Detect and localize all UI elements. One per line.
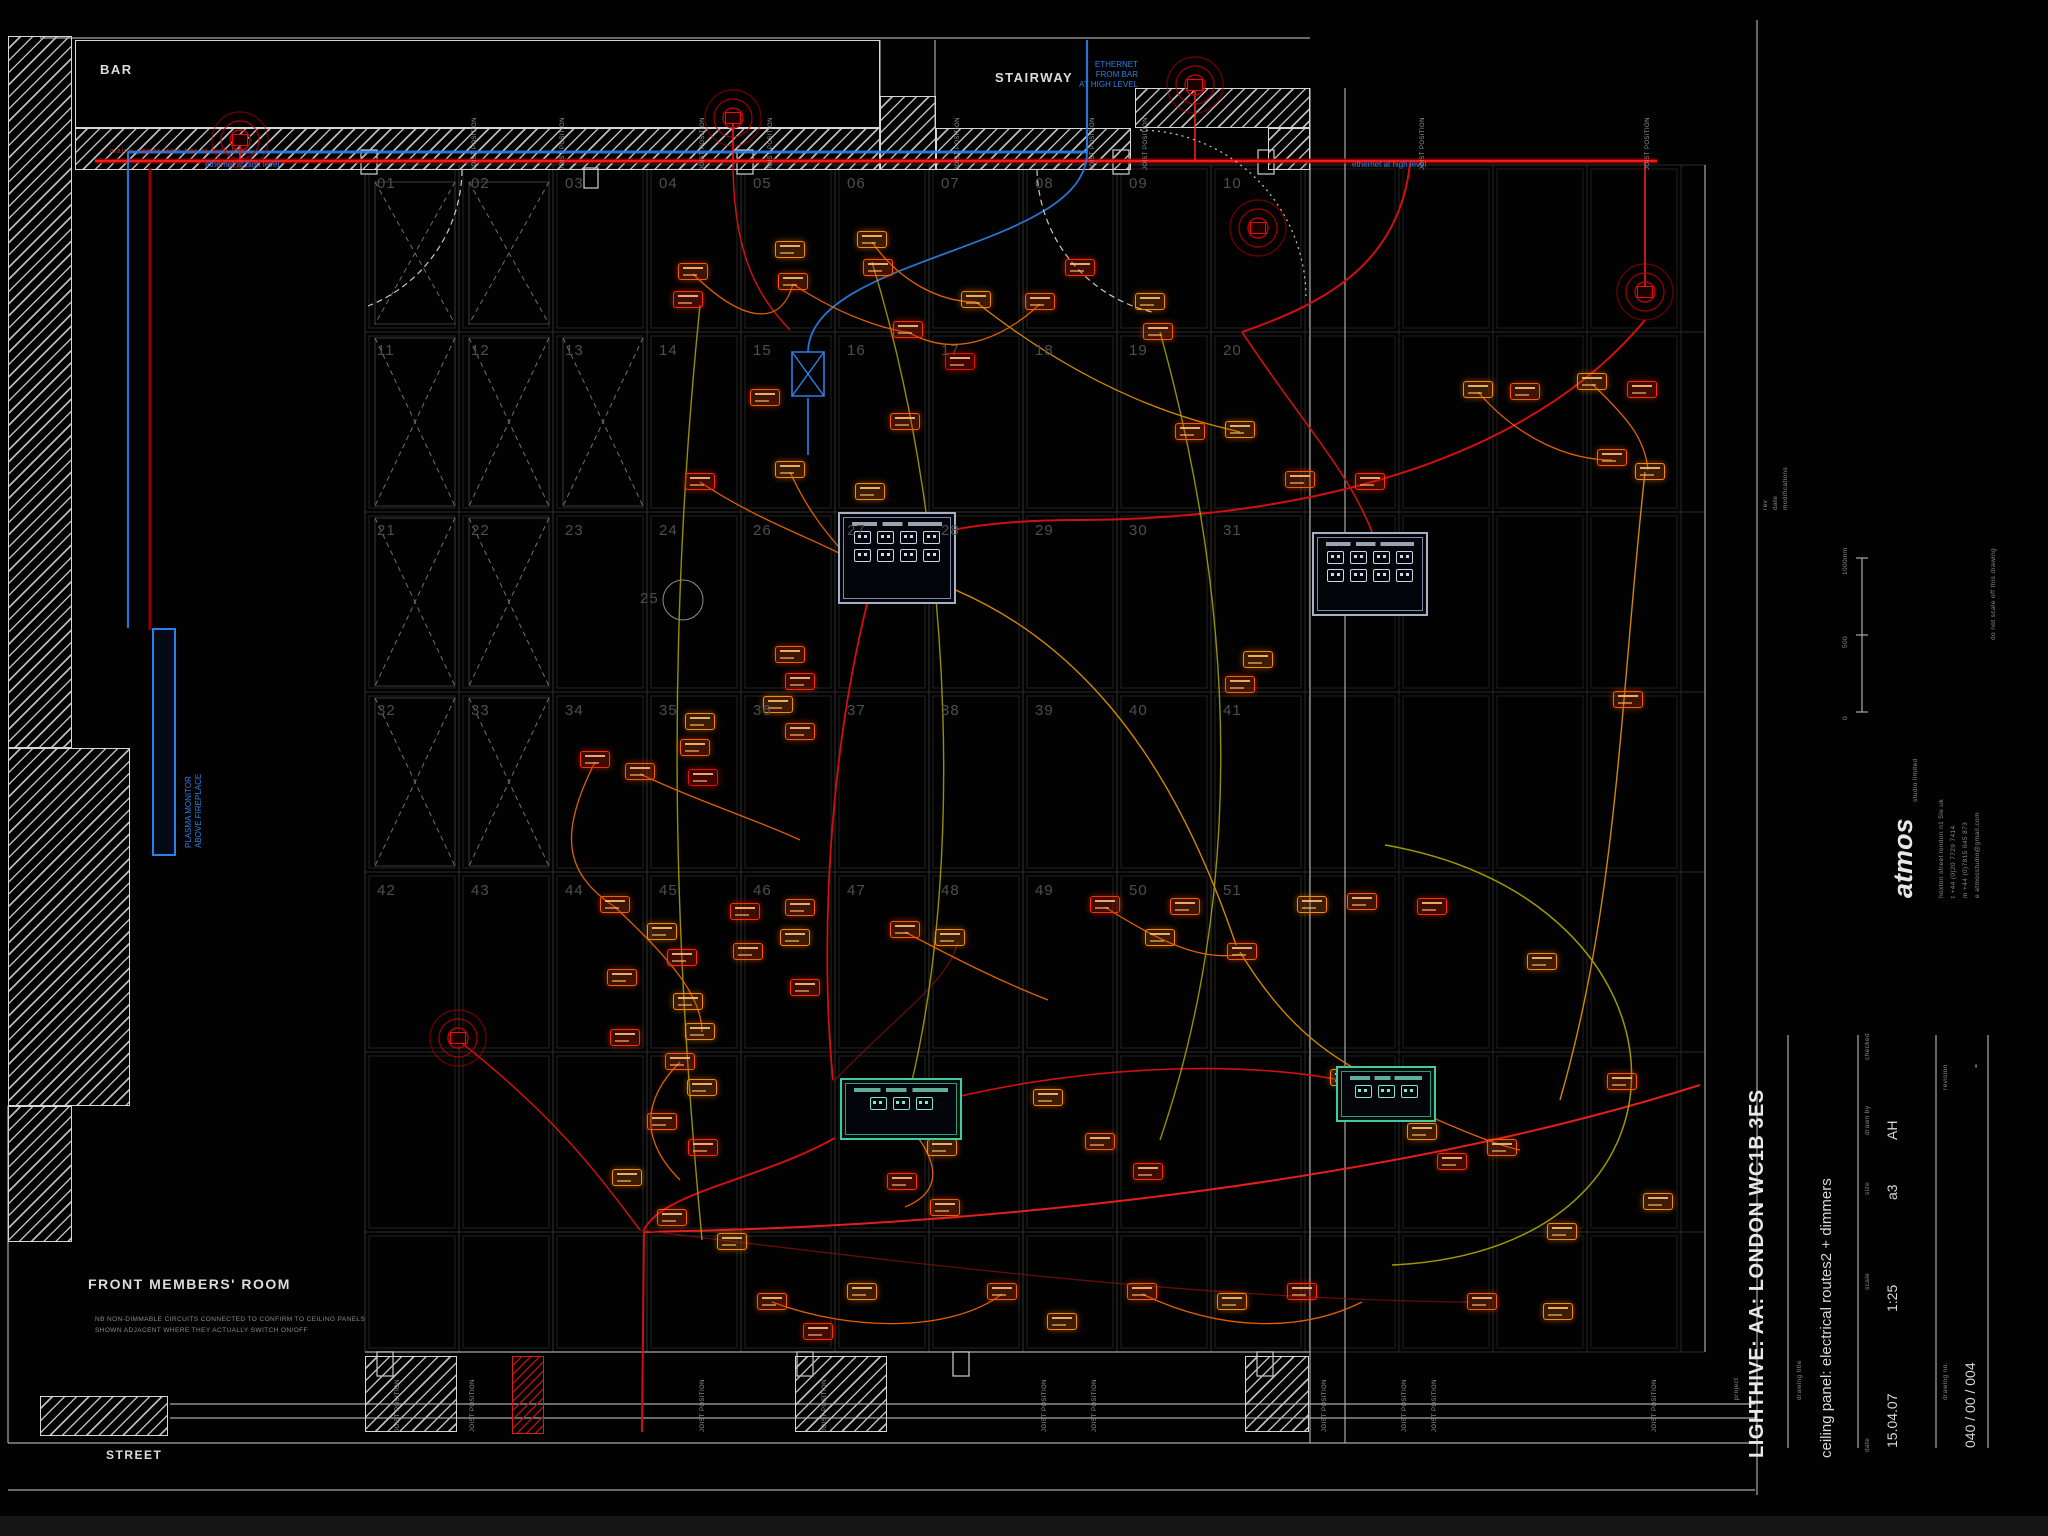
light-fixture <box>1487 1139 1517 1156</box>
grid-number: 21 <box>377 522 396 539</box>
cable-route-yellow <box>872 262 944 1108</box>
light-fixture <box>1065 259 1095 276</box>
connector-icon <box>900 549 917 562</box>
connector-icon <box>1355 1085 1372 1098</box>
grid-number: 51 <box>1223 882 1242 899</box>
light-fixture <box>1543 1303 1573 1320</box>
grid-number: 27 <box>847 522 866 539</box>
light-fixture <box>1417 898 1447 915</box>
connector-icon <box>893 1097 910 1110</box>
grid-number: 29 <box>1035 522 1054 539</box>
joist-position-label: JOIST POSITION <box>768 117 774 170</box>
light-fixture <box>775 461 805 478</box>
grid-number: 39 <box>1035 702 1054 719</box>
light-fixture <box>1225 421 1255 438</box>
light-fixture <box>1627 381 1657 398</box>
date-value: 15.04.07 <box>1884 1394 1900 1449</box>
cable-route-amber <box>976 302 1240 432</box>
revision-value: - <box>1968 1064 1982 1068</box>
light-fixture <box>785 899 815 916</box>
grid-number: 10 <box>1223 175 1242 192</box>
light-fixture <box>687 1079 717 1096</box>
cable-route-orange <box>908 304 1040 344</box>
light-fixture <box>778 273 808 290</box>
light-fixture <box>1297 896 1327 913</box>
atmos-address: hoxton street london n1 5le uk <box>1938 799 1945 898</box>
joist-position-label: JOIST POSITION <box>470 1379 476 1432</box>
light-fixture <box>1285 471 1315 488</box>
connector-icon <box>1396 551 1413 564</box>
size-value: a3 <box>1884 1184 1900 1200</box>
grid-number: 18 <box>1035 342 1054 359</box>
light-fixture <box>730 903 760 920</box>
light-fixture <box>685 473 715 490</box>
light-fixture <box>1527 953 1557 970</box>
ethernet-from-bar-note: ETHERNET FROM BAR AT HIGH LEVEL <box>1056 60 1138 90</box>
light-fixture <box>790 979 820 996</box>
grid-number: 03 <box>565 175 584 192</box>
light-fixture <box>775 646 805 663</box>
light-fixture <box>987 1283 1017 1300</box>
grid-number: 04 <box>659 175 678 192</box>
connector-icon <box>1373 551 1390 564</box>
joist-position-label: JOIST POSITION <box>472 117 478 170</box>
plasma-monitor-label-line1: PLASMA MONITOR <box>184 776 193 848</box>
grid-number: 33 <box>471 702 490 719</box>
grid-number: 26 <box>753 522 772 539</box>
light-fixture <box>1643 1193 1673 1210</box>
room-label-street: STREET <box>106 1448 162 1462</box>
light-fixture <box>1407 1123 1437 1140</box>
light-fixture <box>680 739 710 756</box>
grid-number: 44 <box>565 882 584 899</box>
data-panel <box>840 1078 962 1140</box>
power-point-box <box>725 112 741 124</box>
grid-number: 23 <box>565 522 584 539</box>
light-fixture <box>847 1283 877 1300</box>
power-point-box <box>1637 286 1653 298</box>
light-fixture <box>1170 898 1200 915</box>
light-fixture <box>647 1113 677 1130</box>
light-fixture <box>961 291 991 308</box>
data-panel <box>1336 1066 1436 1122</box>
cable-route-orange <box>905 932 1048 1000</box>
scale-label: scale <box>1864 1273 1871 1290</box>
room-label-bar: BAR <box>100 62 133 77</box>
grid-number: 01 <box>377 175 396 192</box>
light-fixture <box>780 929 810 946</box>
light-fixture <box>1437 1153 1467 1170</box>
bottom-dark-strip <box>0 1516 2048 1536</box>
cable-route-darkred <box>640 1230 1470 1302</box>
light-fixture <box>580 751 610 768</box>
light-fixture <box>930 1199 960 1216</box>
scalebar-1000-label: 1000mm <box>1842 547 1849 575</box>
light-fixture <box>757 1293 787 1310</box>
light-fixture <box>890 921 920 938</box>
no-scale-note: do not scale off this drawing <box>1990 548 1997 640</box>
connector-icon <box>1373 569 1390 582</box>
checked-label: checked <box>1864 1033 1871 1060</box>
light-fixture <box>1467 1293 1497 1310</box>
connector-icon <box>877 531 894 544</box>
atmos-phone: t +44 (0)20 7729 7414 <box>1950 825 1957 898</box>
plasma-monitor-symbol <box>152 628 176 856</box>
project-title: LIGHTHIVE: AA: LONDON WC1B 3ES <box>1746 1089 1769 1458</box>
grid-number: 45 <box>659 882 678 899</box>
light-fixture <box>1133 1163 1163 1180</box>
grid-number: 31 <box>1223 522 1242 539</box>
light-fixture <box>750 389 780 406</box>
light-fixture <box>1613 691 1643 708</box>
cable-route-red <box>900 1069 1385 1112</box>
atmos-logo-subtitle: studio limited <box>1912 758 1919 802</box>
connector-icon <box>1327 569 1344 582</box>
light-fixture <box>1227 943 1257 960</box>
panel-connector-row <box>1314 568 1426 586</box>
panel-title-line <box>854 1088 948 1092</box>
grid-number: 46 <box>753 882 772 899</box>
cable-route-orange <box>1478 392 1612 460</box>
grid-number: 32 <box>377 702 396 719</box>
ethernet-high-level-note-left: ethernet at high level <box>205 160 279 169</box>
light-fixture <box>1597 449 1627 466</box>
light-fixture <box>1355 473 1385 490</box>
connector-icon <box>900 531 917 544</box>
light-fixture <box>1175 423 1205 440</box>
grid-number: 06 <box>847 175 866 192</box>
joist-position-label: JOIST POSITION <box>1092 1379 1098 1432</box>
joist-position-label: JOIST POSITION <box>700 1379 706 1432</box>
scalebar-500-label: 500 <box>1842 636 1849 648</box>
cable-route-darkred <box>833 942 958 1082</box>
cable-route-red <box>1242 163 1410 332</box>
panel-connector-row <box>1314 550 1426 568</box>
light-fixture <box>733 943 763 960</box>
light-fixture <box>1347 893 1377 910</box>
front-room-note-line2: SHOWN ADJACENT WHERE THEY ACTUALLY SWITC… <box>95 1327 308 1334</box>
light-fixture <box>857 231 887 248</box>
grid-number: 16 <box>847 342 866 359</box>
light-fixture <box>1090 896 1120 913</box>
light-fixture <box>855 483 885 500</box>
cable-route-blue <box>792 352 824 396</box>
grid-number: 07 <box>941 175 960 192</box>
connector-icon <box>1396 569 1413 582</box>
joist-position-label: JOIST POSITION <box>1042 1379 1048 1432</box>
light-fixture <box>1145 929 1175 946</box>
light-fixture <box>1217 1293 1247 1310</box>
light-fixture <box>688 769 718 786</box>
margin-date-label: date <box>1772 496 1779 510</box>
connector-icon <box>923 549 940 562</box>
ethernet-high-level-note-right: ethernet at high level <box>1352 160 1426 169</box>
joist-position-label: JOIST POSITION <box>560 117 566 170</box>
ethernet-note-line2: FROM BAR <box>1056 70 1138 80</box>
light-fixture <box>1243 651 1273 668</box>
joist-position-label: JOIST POSITION <box>1420 117 1426 170</box>
light-fixture <box>717 1233 747 1250</box>
grid-number: 41 <box>1223 702 1242 719</box>
grid-number: 40 <box>1129 702 1148 719</box>
light-fixture <box>665 1053 695 1070</box>
column-circle <box>663 580 703 620</box>
grid-number: 12 <box>471 342 490 359</box>
light-fixture <box>863 259 893 276</box>
margin-rev-label: rev <box>1762 500 1769 510</box>
light-fixture <box>1047 1313 1077 1330</box>
grid-number: 22 <box>471 522 490 539</box>
cad-drawing-sheet: BAR STAIRWAY FRONT MEMBERS' ROOM NB NON-… <box>0 0 2048 1536</box>
connector-icon <box>1350 569 1367 582</box>
drawing-title-label: drawing title <box>1796 1360 1803 1400</box>
grid-number: 17 <box>941 342 960 359</box>
ethernet-note-line1: ETHERNET <box>1056 60 1138 70</box>
light-fixture <box>625 763 655 780</box>
grid-number: 35 <box>659 702 678 719</box>
grid-number: 05 <box>753 175 772 192</box>
ethernet-note-line3: AT HIGH LEVEL <box>1056 80 1138 90</box>
joist-position-label: JOIST POSITION <box>1432 1379 1438 1432</box>
light-fixture <box>607 969 637 986</box>
grid-number: 47 <box>847 882 866 899</box>
drawing-title: ceiling panel: electrical routes2 + dimm… <box>1818 1178 1835 1458</box>
cable-route-red <box>642 1138 835 1432</box>
drawn-by-label: drawn by <box>1864 1105 1871 1135</box>
grid-number: 37 <box>847 702 866 719</box>
atmos-logo: atmos <box>1888 818 1919 898</box>
light-fixture <box>1577 373 1607 390</box>
drawing-no-label: drawing no. <box>1942 1362 1949 1400</box>
light-fixture <box>785 723 815 740</box>
grid-number-25: 25 <box>640 590 659 607</box>
light-fixture <box>1547 1223 1577 1240</box>
cable-route-red <box>1242 332 1372 532</box>
grid-number: 38 <box>941 702 960 719</box>
light-fixture <box>688 1139 718 1156</box>
power-point-box <box>450 1032 466 1044</box>
light-fixture <box>775 241 805 258</box>
grid-number: 14 <box>659 342 678 359</box>
light-fixture <box>1635 463 1665 480</box>
joist-position-label: JOIST POSITION <box>1652 1379 1658 1432</box>
light-fixture <box>887 1173 917 1190</box>
connector-icon <box>916 1097 933 1110</box>
cable-route-red <box>868 320 1645 558</box>
light-fixture <box>673 993 703 1010</box>
atmos-email: e atmosstudio@gmail.com <box>1974 812 1981 898</box>
light-fixture <box>1025 293 1055 310</box>
mains-power-note: mains power from bar at high level <box>110 148 251 155</box>
dimmer-panel <box>1312 532 1428 616</box>
cable-route-orange <box>640 774 800 840</box>
size-label: size <box>1864 1182 1871 1195</box>
panel-connector-row <box>840 548 954 566</box>
light-fixture <box>1463 381 1493 398</box>
cable-routes-layer <box>0 0 2048 1536</box>
panel-title-line <box>1326 542 1414 546</box>
room-label-front-members-room: FRONT MEMBERS' ROOM <box>88 1276 291 1292</box>
panel-connector-row <box>1338 1084 1434 1102</box>
light-fixture <box>600 896 630 913</box>
plasma-monitor-label-line2: ABOVE FIREPLACE <box>194 774 203 848</box>
light-fixture <box>678 263 708 280</box>
margin-modifications-label: modifications <box>1782 467 1789 510</box>
light-fixture <box>935 929 965 946</box>
light-fixture <box>1127 1283 1157 1300</box>
light-fixture <box>610 1029 640 1046</box>
light-fixture <box>1225 676 1255 693</box>
power-point-box <box>1250 222 1266 234</box>
cable-route-red <box>458 1040 640 1230</box>
joist-position-label: JOIST POSITION <box>822 1379 828 1432</box>
light-fixture <box>685 1023 715 1040</box>
joist-position-label: JOIST POSITION <box>1143 117 1149 170</box>
grid-number: 02 <box>471 175 490 192</box>
cable-route-redBright <box>645 1085 1700 1232</box>
connector-icon <box>1401 1085 1418 1098</box>
cable-route-orange <box>700 482 848 558</box>
grid-number: 49 <box>1035 882 1054 899</box>
light-fixture <box>785 673 815 690</box>
grid-number: 30 <box>1129 522 1148 539</box>
light-fixture <box>1287 1283 1317 1300</box>
light-fixture <box>1085 1133 1115 1150</box>
grid-number: 11 <box>377 342 395 359</box>
connector-icon <box>1350 551 1367 564</box>
grid-number: 28 <box>941 522 960 539</box>
light-fixture <box>890 413 920 430</box>
grid-number: 34 <box>565 702 584 719</box>
grid-number: 19 <box>1129 342 1148 359</box>
connector-icon <box>877 549 894 562</box>
grid-number: 13 <box>565 342 584 359</box>
cable-route-red <box>827 600 868 1080</box>
joist-position-label: JOIST POSITION <box>1090 117 1096 170</box>
light-fixture <box>893 321 923 338</box>
grid-number: 15 <box>753 342 772 359</box>
grid-number: 36 <box>753 702 772 719</box>
date-label: date <box>1864 1438 1871 1452</box>
light-fixture <box>612 1169 642 1186</box>
drawn-by-value: AH <box>1884 1121 1900 1140</box>
joist-position-label: JOIST POSITION <box>700 117 706 170</box>
joist-position-label: JOIST POSITION <box>395 1379 401 1432</box>
light-fixture <box>685 713 715 730</box>
grid-number: 43 <box>471 882 490 899</box>
cable-route-amber <box>1560 472 1645 1100</box>
joist-position-label: JOIST POSITION <box>1402 1379 1408 1432</box>
grid-number: 42 <box>377 882 396 899</box>
light-fixture <box>667 949 697 966</box>
grid-number: 08 <box>1035 175 1054 192</box>
light-fixture <box>1135 293 1165 310</box>
grid-number: 50 <box>1129 882 1148 899</box>
connector-icon <box>1327 551 1344 564</box>
connector-icon <box>854 549 871 562</box>
grid-number: 48 <box>941 882 960 899</box>
light-fixture <box>673 291 703 308</box>
light-fixture <box>1143 323 1173 340</box>
panel-connector-row <box>842 1096 960 1114</box>
joist-position-label: JOIST POSITION <box>1645 117 1651 170</box>
light-fixture <box>647 923 677 940</box>
connector-icon <box>923 531 940 544</box>
connector-icon <box>870 1097 887 1110</box>
light-fixture <box>1510 383 1540 400</box>
grid-number: 20 <box>1223 342 1242 359</box>
scale-value: 1:25 <box>1884 1285 1900 1312</box>
grid-number: 24 <box>659 522 678 539</box>
grid-number: 09 <box>1129 175 1148 192</box>
joist-position-label: JOIST POSITION <box>1322 1379 1328 1432</box>
light-fixture <box>803 1323 833 1340</box>
light-fixture <box>1607 1073 1637 1090</box>
panel-title-line <box>1350 1076 1422 1080</box>
drawing-no-value: 040 / 00 / 004 <box>1962 1362 1978 1448</box>
front-room-note-line1: NB NON-DIMMABLE CIRCUITS CONNECTED TO CO… <box>95 1316 365 1323</box>
cable-route-yellow <box>1160 332 1221 1140</box>
revision-label: revision <box>1942 1064 1949 1090</box>
light-fixture <box>657 1209 687 1226</box>
joist-position-label: JOIST POSITION <box>955 117 961 170</box>
connector-icon <box>1378 1085 1395 1098</box>
light-fixture <box>927 1139 957 1156</box>
cable-route-orange <box>772 1294 1002 1324</box>
power-point-box <box>1187 79 1203 91</box>
power-point-box <box>232 134 248 146</box>
atmos-mobile: m +44 (0)7815 045 873 <box>1962 822 1969 898</box>
cable-route-orange <box>793 284 908 332</box>
light-fixture <box>1033 1089 1063 1106</box>
project-label: project <box>1733 1378 1740 1400</box>
scalebar-zero-label: 0 <box>1842 716 1849 720</box>
